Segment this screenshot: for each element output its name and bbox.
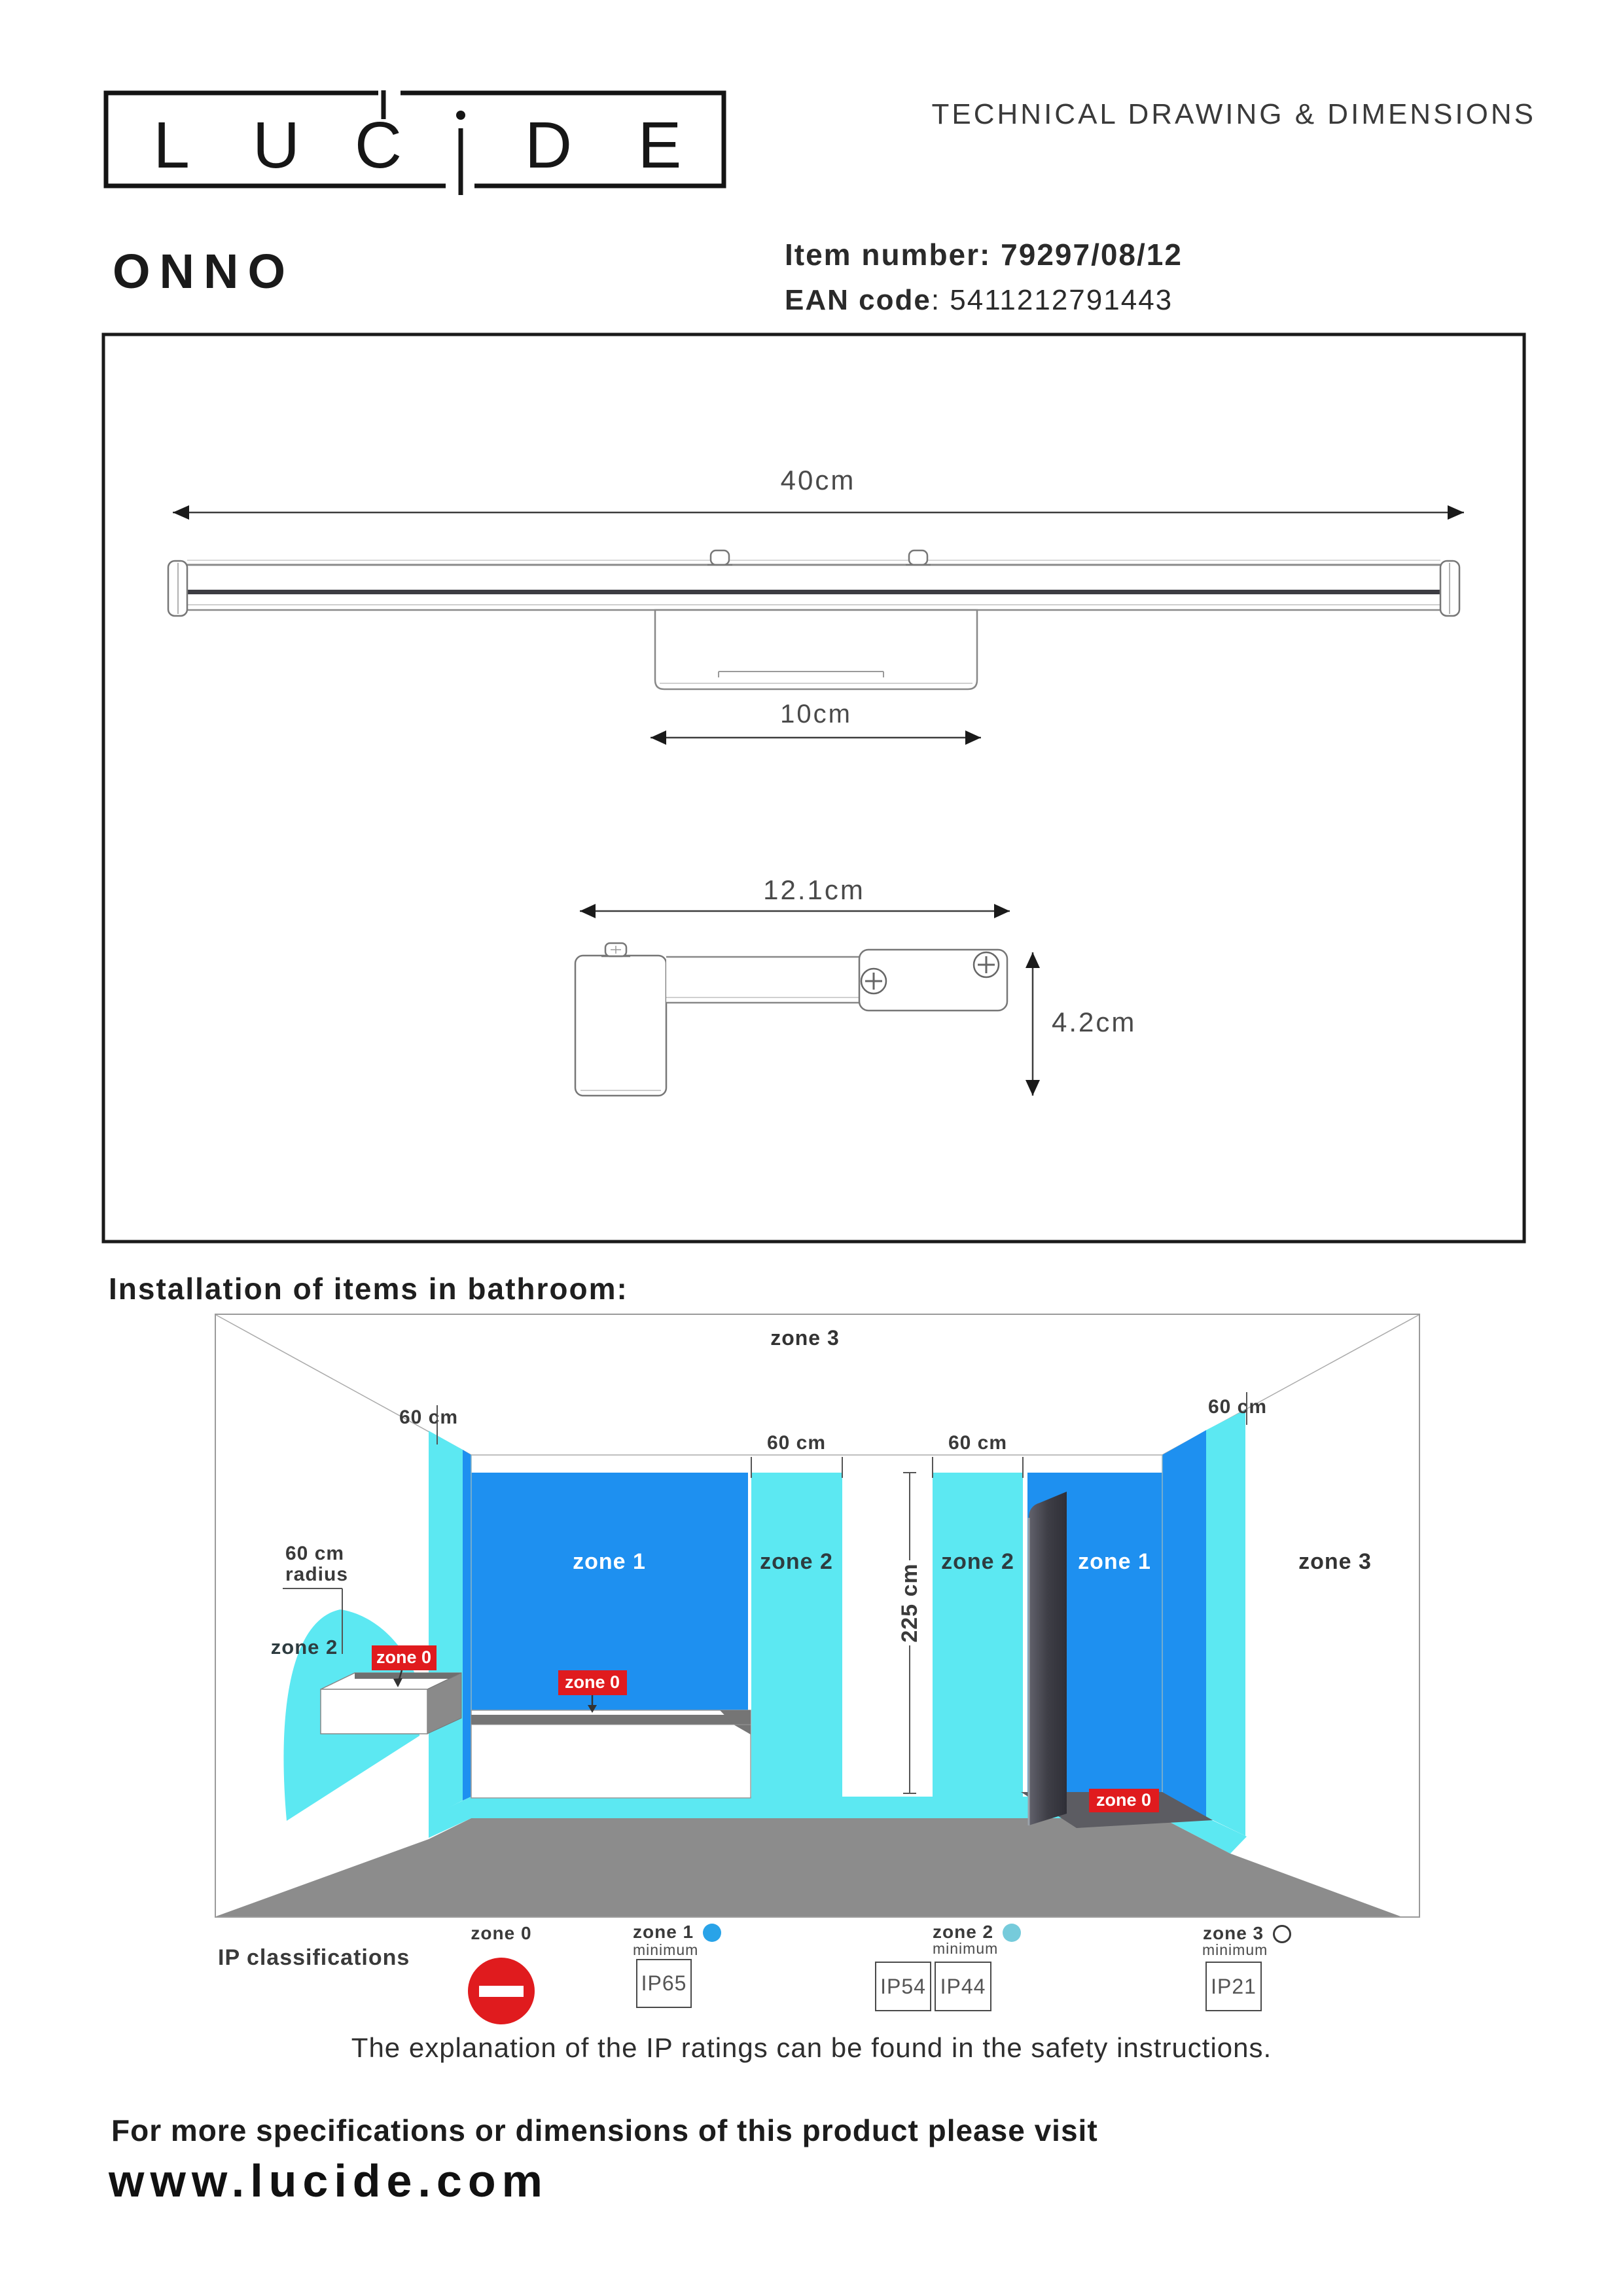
ip-zone0-label: zone 0	[469, 1923, 534, 1944]
side-lamp-profile	[575, 956, 666, 1096]
no-entry-icon	[468, 1958, 535, 2024]
logo-letter-e: E	[638, 109, 682, 182]
dim-60cm-backwall-left: 60 cm	[767, 1432, 826, 1454]
washbasin	[321, 1673, 461, 1734]
label-zone2-basin: zone 2	[271, 1636, 338, 1659]
dim-225cm-label: 225 cm	[897, 1563, 922, 1642]
ean-label: EAN code	[785, 284, 931, 316]
document-title: TECHNICAL DRAWING & DIMENSIONS	[932, 98, 1536, 131]
ip21-value: IP21	[1211, 1975, 1257, 1999]
side-arm	[666, 957, 859, 1003]
ip-explanation: The explanation of the IP ratings can be…	[0, 2032, 1623, 2064]
bathtub	[471, 1710, 751, 1798]
logo-letter-u: U	[253, 109, 300, 182]
ip65-box: IP65	[636, 1959, 692, 2008]
backwall-zone2-strip-left	[751, 1473, 842, 1797]
ip-zone3-label-text: zone 3	[1203, 1923, 1264, 1943]
ip-zone1-label-text: zone 1	[633, 1922, 694, 1942]
ip44-box: IP44	[935, 1962, 991, 2011]
label-zone3-ceiling: zone 3	[770, 1326, 840, 1350]
ip65-value: IP65	[641, 1971, 687, 1996]
zone0-badge-shower: zone 0	[1089, 1789, 1159, 1812]
backwall-zone2-strip-right	[933, 1473, 1023, 1797]
footer-note: For more specifications or dimensions of…	[111, 2113, 1098, 2148]
item-number-line: Item number: 79297/08/12	[785, 237, 1183, 272]
wall-bracket	[655, 610, 977, 689]
technical-drawing-panel: 40cm	[101, 332, 1526, 1244]
zone1-dot-icon	[703, 1924, 721, 1942]
mount-screw-bottom	[861, 969, 886, 994]
ip54-value: IP54	[880, 1975, 926, 1999]
ip-zone2-label-text: zone 2	[933, 1922, 993, 1942]
lamp-tube-stripe	[187, 590, 1440, 594]
bathroom-heading: Installation of items in bathroom:	[109, 1271, 628, 1306]
no-entry-bar	[479, 1986, 524, 1997]
ean-line: EAN code: 5411212791443	[785, 284, 1183, 317]
zone0-badge-basin-label: zone 0	[376, 1647, 431, 1667]
label-zone3-rightwall: zone 3	[1298, 1549, 1372, 1574]
zone2-dot-icon	[1003, 1924, 1021, 1942]
ip-zone3-minimum: minimum	[1202, 1941, 1268, 1959]
dim-42cm-label: 4.2cm	[1052, 1007, 1136, 1037]
label-zone2-bath: zone 2	[760, 1549, 833, 1574]
zone0-badge-bathtub-label: zone 0	[565, 1672, 620, 1692]
logo-letter-d: D	[525, 109, 572, 182]
top-knob-left	[707, 550, 732, 565]
zone3-dot-icon	[1273, 1925, 1291, 1943]
dim-60cm-backwall-right: 60 cm	[948, 1432, 1007, 1454]
right-wall-zone2-strip	[1206, 1410, 1245, 1836]
website-link[interactable]: www.lucide.com	[109, 2155, 548, 2207]
product-name: ONNO	[113, 243, 294, 299]
logo-letter-i-dot	[456, 111, 465, 120]
logo-box	[106, 93, 724, 186]
lamp-bar-body	[187, 559, 1440, 614]
dim-40cm-label: 40cm	[781, 465, 856, 495]
label-zone2-shower: zone 2	[941, 1549, 1014, 1574]
dim-60cm-rightwall: 60 cm	[1208, 1396, 1267, 1418]
ean-value: 5411212791443	[950, 284, 1173, 316]
item-number-value: 79297/08/12	[1001, 238, 1183, 272]
bathroom-zone-diagram: zone 0 zone 0 zone 0 60 cm 60 cm 60 cm 6…	[215, 1314, 1420, 1918]
lucide-logo: L U C D E	[103, 90, 726, 196]
product-codes: Item number: 79297/08/12 EAN code: 54112…	[785, 237, 1183, 317]
radius-label-line1: 60 cm	[285, 1543, 344, 1564]
radius-label-line2: radius	[285, 1564, 348, 1585]
logo-letter-l: L	[153, 109, 190, 182]
zone0-badge-shower-label: zone 0	[1096, 1790, 1151, 1810]
ip54-box: IP54	[875, 1962, 931, 2011]
ip44-value: IP44	[940, 1975, 986, 1999]
ip-zone2-minimum: minimum	[933, 1940, 998, 1958]
left-wall-zone1-sliver	[463, 1450, 471, 1801]
ip-zone1-minimum: minimum	[633, 1941, 698, 1959]
dim-10cm-label: 10cm	[780, 700, 852, 728]
label-zone1-shower: zone 1	[1078, 1549, 1151, 1574]
item-number-label: Item number:	[785, 238, 991, 272]
ip21-box: IP21	[1205, 1962, 1262, 2011]
dim-121cm-label: 12.1cm	[763, 874, 865, 905]
label-zone1-bath: zone 1	[573, 1549, 646, 1574]
spec-sheet-page: L U C D E TECHNICAL DRAWING & DIMENSIONS…	[0, 0, 1623, 2296]
ean-colon: :	[931, 284, 950, 316]
mount-screw-top	[974, 952, 999, 977]
ip-classifications-heading: IP classifications	[218, 1945, 410, 1971]
side-top-knob	[601, 943, 630, 956]
right-wall-zone1-sliver	[1162, 1430, 1206, 1817]
dim-60cm-leftwall: 60 cm	[399, 1407, 458, 1428]
shower-panel	[1029, 1492, 1067, 1825]
logo-letter-c: C	[355, 109, 402, 182]
ip-zone1-label: zone 1	[633, 1922, 721, 1943]
left-wall-zone2-strip	[429, 1431, 463, 1818]
top-knob-right	[906, 550, 931, 565]
